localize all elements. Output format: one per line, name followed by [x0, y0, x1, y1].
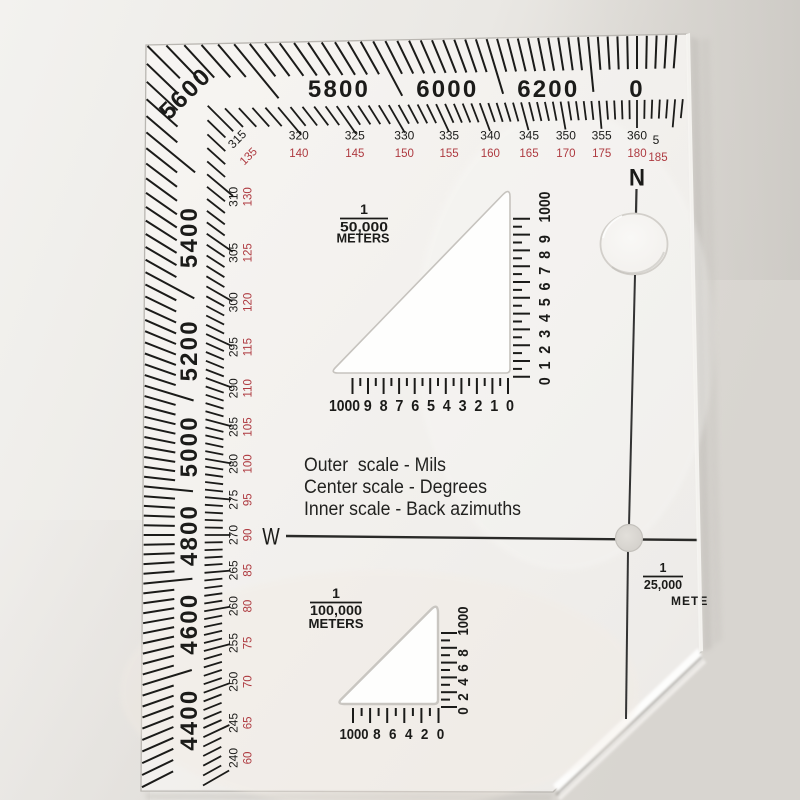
svg-text:65: 65	[243, 717, 255, 730]
svg-text:155: 155	[440, 148, 459, 160]
svg-text:4: 4	[405, 726, 413, 743]
svg-text:25,000: 25,000	[644, 578, 682, 592]
svg-text:1000: 1000	[340, 726, 369, 743]
svg-text:5: 5	[427, 398, 435, 415]
svg-text:9: 9	[537, 235, 554, 243]
svg-text:75: 75	[243, 637, 255, 650]
svg-text:1: 1	[490, 398, 498, 415]
svg-text:350: 350	[556, 129, 576, 143]
svg-text:8: 8	[537, 251, 554, 259]
svg-text:0: 0	[455, 707, 472, 715]
svg-text:105: 105	[243, 417, 255, 436]
svg-text:0: 0	[437, 726, 445, 743]
svg-text:1: 1	[537, 361, 554, 369]
svg-text:150: 150	[395, 148, 414, 160]
svg-text:250: 250	[227, 671, 241, 691]
svg-text:3: 3	[537, 330, 554, 338]
svg-text:295: 295	[227, 337, 241, 357]
svg-text:4: 4	[537, 314, 554, 322]
svg-text:335: 335	[439, 129, 459, 143]
svg-text:3: 3	[459, 398, 467, 415]
svg-text:125: 125	[243, 243, 255, 262]
svg-text:5800: 5800	[308, 76, 370, 103]
svg-text:95: 95	[243, 493, 255, 506]
svg-text:330: 330	[394, 129, 414, 143]
svg-text:275: 275	[227, 489, 241, 509]
svg-text:355: 355	[592, 129, 612, 143]
svg-text:6200: 6200	[517, 76, 579, 103]
svg-text:145: 145	[345, 148, 364, 160]
svg-text:180: 180	[627, 148, 646, 160]
svg-text:120: 120	[243, 293, 255, 312]
svg-text:6000: 6000	[416, 76, 478, 103]
svg-text:140: 140	[289, 148, 308, 160]
svg-text:5000: 5000	[176, 415, 203, 477]
svg-text:345: 345	[519, 129, 539, 143]
svg-text:165: 165	[519, 148, 538, 160]
svg-text:300: 300	[227, 292, 241, 312]
svg-text:305: 305	[227, 242, 241, 262]
svg-text:0: 0	[629, 76, 645, 103]
svg-text:1000: 1000	[455, 607, 472, 636]
svg-text:METERS: METERS	[337, 232, 390, 246]
svg-text:9: 9	[364, 398, 372, 415]
svg-text:8: 8	[373, 726, 381, 743]
svg-text:4800: 4800	[176, 504, 203, 566]
svg-text:1: 1	[360, 201, 368, 217]
svg-text:1000: 1000	[537, 191, 554, 222]
svg-text:260: 260	[227, 596, 241, 616]
svg-text:1: 1	[332, 585, 340, 601]
svg-text:285: 285	[227, 417, 241, 437]
svg-text:290: 290	[227, 378, 241, 398]
svg-text:0: 0	[537, 377, 554, 385]
svg-text:160: 160	[481, 148, 500, 160]
svg-text:4600: 4600	[176, 593, 203, 655]
svg-text:2: 2	[537, 346, 554, 354]
svg-text:8: 8	[380, 398, 388, 415]
svg-text:7: 7	[395, 398, 403, 415]
svg-text:70: 70	[243, 675, 255, 688]
svg-text:85: 85	[243, 564, 255, 577]
svg-text:270: 270	[227, 525, 241, 545]
svg-text:175: 175	[592, 148, 611, 160]
svg-text:90: 90	[243, 529, 255, 542]
svg-text:2: 2	[421, 726, 429, 743]
svg-text:8: 8	[455, 649, 472, 657]
svg-text:100,000: 100,000	[310, 602, 362, 618]
svg-text:320: 320	[289, 129, 309, 143]
svg-text:240: 240	[227, 748, 241, 768]
svg-text:110: 110	[243, 379, 255, 397]
svg-text:5: 5	[653, 133, 660, 147]
svg-text:255: 255	[227, 633, 241, 653]
svg-text:Center scale - Degrees: Center scale - Degrees	[304, 477, 487, 498]
svg-text:4: 4	[443, 398, 451, 415]
svg-text:130: 130	[243, 187, 255, 206]
svg-text:Inner scale - Back azimuths: Inner scale - Back azimuths	[304, 499, 521, 520]
svg-text:265: 265	[227, 560, 241, 580]
svg-text:6: 6	[389, 726, 397, 743]
svg-text:80: 80	[243, 600, 255, 613]
svg-text:4: 4	[455, 678, 472, 686]
svg-text:4400: 4400	[176, 689, 203, 751]
svg-text:280: 280	[227, 454, 241, 474]
svg-text:115: 115	[243, 338, 255, 356]
svg-text:N: N	[629, 165, 645, 192]
svg-text:185: 185	[648, 152, 667, 164]
svg-text:310: 310	[227, 186, 241, 206]
svg-text:325: 325	[345, 129, 365, 143]
svg-text:7: 7	[537, 267, 554, 275]
svg-text:100: 100	[243, 454, 255, 473]
svg-text:METE: METE	[671, 594, 708, 608]
svg-text:0: 0	[506, 398, 514, 415]
svg-text:5400: 5400	[176, 206, 203, 268]
svg-text:6: 6	[455, 664, 472, 672]
svg-text:6: 6	[411, 398, 419, 415]
svg-text:METERS: METERS	[309, 617, 364, 631]
svg-text:2: 2	[455, 693, 472, 701]
svg-text:360: 360	[627, 129, 647, 143]
svg-text:245: 245	[227, 713, 241, 733]
svg-text:60: 60	[243, 752, 255, 765]
svg-text:340: 340	[480, 129, 500, 143]
svg-text:W: W	[262, 524, 280, 551]
svg-text:6: 6	[537, 282, 554, 290]
svg-text:2: 2	[474, 398, 482, 415]
svg-text:1: 1	[660, 561, 667, 575]
svg-text:170: 170	[556, 148, 575, 160]
svg-text:5: 5	[537, 298, 554, 306]
svg-text:1000: 1000	[329, 398, 360, 415]
svg-text:Outer scale - Mils: Outer scale - Mils	[304, 455, 446, 476]
svg-text:5200: 5200	[176, 319, 203, 381]
